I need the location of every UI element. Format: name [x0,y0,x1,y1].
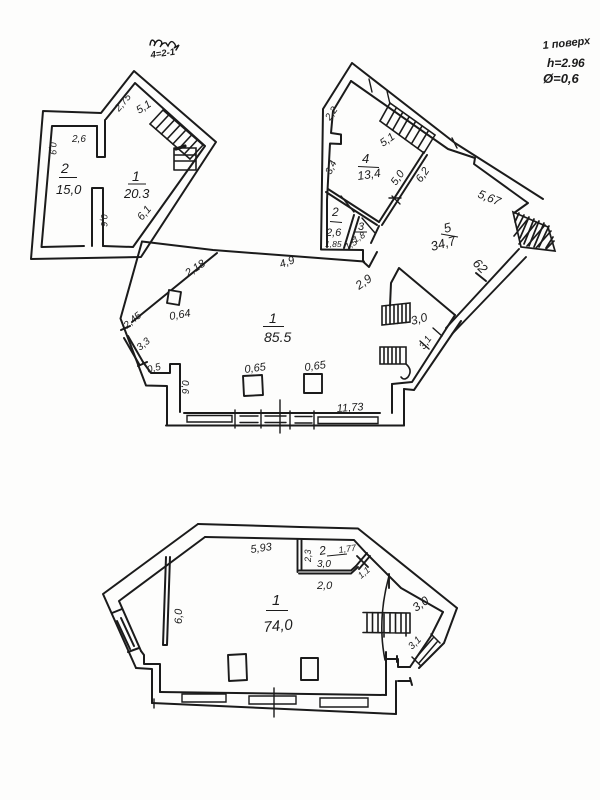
svg-text:4: 4 [362,151,369,166]
svg-text:1,85: 1,85 [325,239,342,249]
svg-text:2,6: 2,6 [325,227,342,239]
svg-text:2,3: 2,3 [303,549,313,563]
svg-text:1: 1 [132,168,140,184]
svg-text:6,0: 6,0 [173,608,185,624]
svg-text:2: 2 [60,160,69,176]
svg-text:2,0: 2,0 [316,580,333,592]
svg-text:74,0: 74,0 [263,616,294,636]
svg-text:2: 2 [331,205,339,219]
svg-text:3,0: 3,0 [317,559,331,570]
svg-text:Ø=0,6: Ø=0,6 [543,71,580,86]
svg-text:h=2.96: h=2.96 [547,56,585,70]
svg-text:85.5: 85.5 [264,329,291,345]
svg-text:0,6: 0,6 [99,214,109,227]
svg-text:0,6: 0,6 [179,380,190,394]
svg-text:15,0: 15,0 [56,182,82,197]
svg-text:1: 1 [269,310,277,326]
svg-text:20.3: 20.3 [123,186,150,201]
svg-text:2,6: 2,6 [71,134,86,145]
svg-text:1: 1 [272,592,280,609]
svg-text:11,73: 11,73 [336,401,364,415]
svg-text:0,9: 0,9 [48,142,58,155]
